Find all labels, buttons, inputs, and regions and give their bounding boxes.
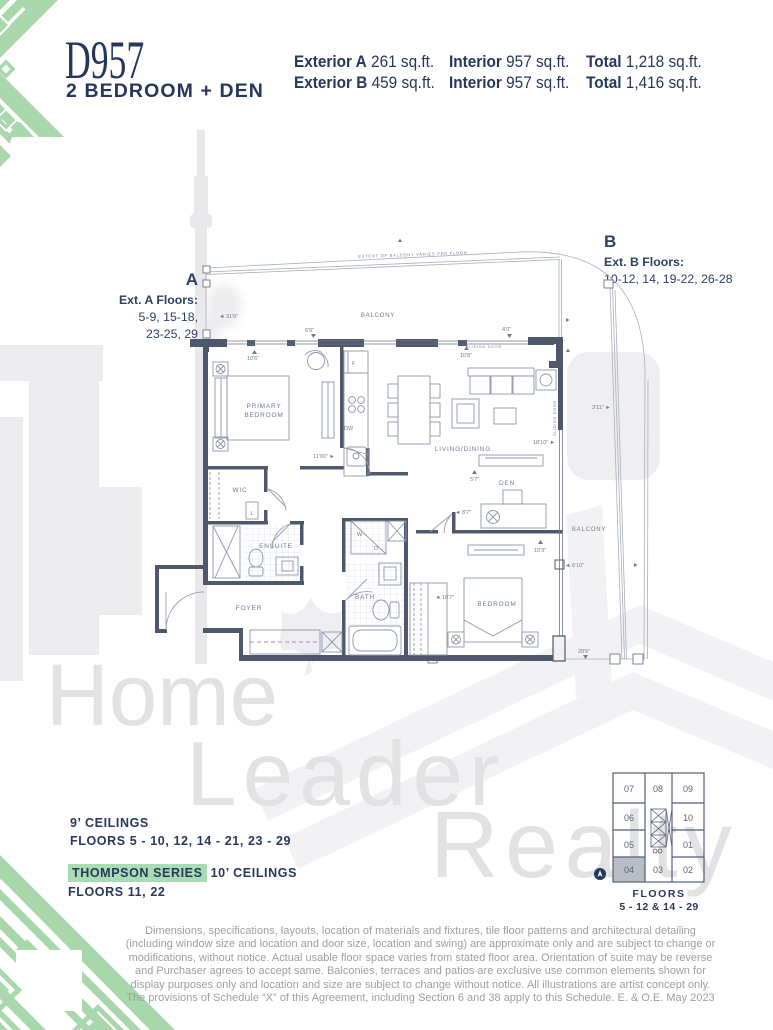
svg-text:05: 05	[624, 840, 634, 850]
svg-text:PRIMARY: PRIMARY	[246, 403, 281, 410]
svg-text:07: 07	[624, 784, 634, 794]
svg-text:28'6": 28'6"	[578, 649, 590, 655]
svg-text:SLIDING DOOR: SLIDING DOOR	[553, 400, 557, 436]
svg-text:10'6": 10'6"	[247, 356, 259, 362]
svg-text:10'8": 10'8"	[460, 353, 472, 359]
svg-text:10'3": 10'3"	[534, 548, 546, 554]
svg-text:DEN: DEN	[499, 480, 515, 487]
svg-text:03: 03	[653, 865, 663, 875]
svg-text:D: D	[374, 546, 378, 552]
svg-text:3'11" ►: 3'11" ►	[592, 405, 611, 411]
svg-text:DW: DW	[344, 426, 354, 432]
svg-text:SLIDING DOOR: SLIDING DOOR	[466, 345, 502, 349]
svg-text:BEDROOM: BEDROOM	[244, 412, 283, 419]
svg-text:◄ 10'7": ◄ 10'7"	[435, 595, 454, 601]
svg-text:10: 10	[683, 813, 693, 823]
svg-text:W: W	[357, 532, 363, 538]
svg-text:◄ 6'10": ◄ 6'10"	[565, 563, 584, 569]
svg-text:BEDROOM: BEDROOM	[477, 601, 516, 608]
svg-text:FOYER: FOYER	[236, 605, 262, 612]
svg-text:08: 08	[653, 784, 663, 794]
svg-text:FLOORS: FLOORS	[632, 888, 685, 900]
svg-text:01: 01	[683, 840, 693, 850]
svg-text:04: 04	[624, 865, 634, 875]
svg-text:02: 02	[683, 865, 693, 875]
svg-text:WIC: WIC	[232, 487, 247, 494]
svg-text:09: 09	[683, 784, 693, 794]
svg-text:F: F	[352, 361, 356, 367]
svg-text:06: 06	[624, 813, 634, 823]
svg-text:BALCONY: BALCONY	[361, 313, 395, 319]
svg-text:6'9": 6'9"	[305, 328, 314, 334]
svg-text:L: L	[250, 511, 253, 517]
svg-text:11'00" ►: 11'00" ►	[313, 454, 335, 460]
svg-text:◄ 31'6": ◄ 31'6"	[219, 314, 238, 320]
svg-text:5 - 12 & 14 - 29: 5 - 12 & 14 - 29	[619, 901, 698, 913]
svg-text:5'7": 5'7"	[470, 477, 479, 483]
svg-text:18'10" ►: 18'10" ►	[533, 440, 555, 446]
svg-text:◄ 8'7": ◄ 8'7"	[455, 510, 471, 516]
svg-text:ENSUITE: ENSUITE	[259, 543, 293, 550]
svg-text:BALCONY: BALCONY	[572, 527, 606, 533]
svg-text:BATH: BATH	[355, 594, 375, 601]
svg-text:LIVING/DINING: LIVING/DINING	[435, 446, 491, 453]
svg-text:4'0": 4'0"	[502, 327, 511, 333]
